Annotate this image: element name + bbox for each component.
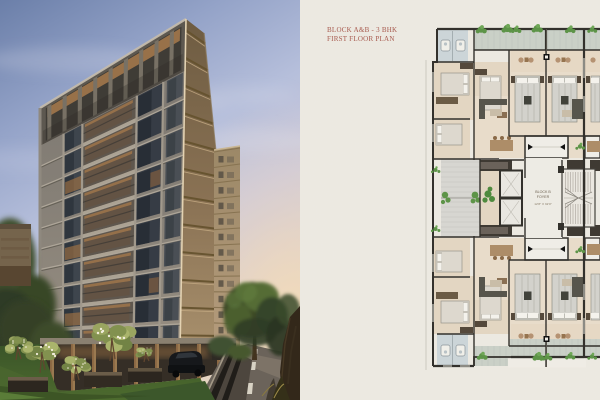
svg-text:FOYER: FOYER <box>537 195 550 199</box>
svg-text:BLOCK A&B - 3 BHK: BLOCK A&B - 3 BHK <box>327 26 397 34</box>
svg-text:FIRST FLOOR PLAN: FIRST FLOOR PLAN <box>327 35 395 43</box>
svg-text:BLOCK B: BLOCK B <box>535 190 551 194</box>
svg-text:12’8” X 32’0”: 12’8” X 32’0” <box>534 202 552 206</box>
